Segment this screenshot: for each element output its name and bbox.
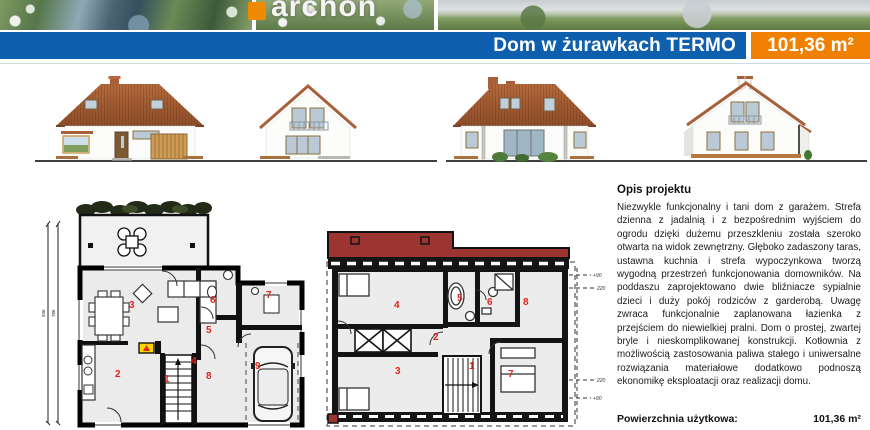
description-body: Niezwykle funkcjonalny i tani dom z gara… bbox=[617, 201, 861, 389]
photo-strip: archon bbox=[0, 0, 870, 30]
room-number: 3 bbox=[129, 301, 135, 311]
kitchen-fixtures bbox=[82, 345, 95, 400]
attic-plan: +90 220 220 +90 1 2 3 4 5 6 7 8 bbox=[325, 228, 610, 430]
elevation-front bbox=[55, 76, 205, 162]
wardrobe bbox=[355, 329, 411, 352]
room-number: 5 bbox=[457, 294, 463, 304]
stairs bbox=[165, 355, 192, 423]
room-number: 7 bbox=[508, 370, 514, 380]
washbasin bbox=[482, 308, 491, 314]
washbasin bbox=[224, 271, 233, 280]
height-mark: 220 bbox=[596, 286, 606, 292]
usable-area-row: Powierzchnia użytkowa: 101,36 m² bbox=[617, 413, 861, 425]
dresser bbox=[501, 348, 535, 358]
dimension-label: 786 bbox=[51, 309, 56, 317]
elevation-garden bbox=[452, 76, 597, 162]
ground-floor-plan: 936 786 bbox=[40, 195, 310, 430]
stove bbox=[139, 341, 161, 354]
dimension-label: 936 bbox=[41, 309, 46, 317]
toilet bbox=[466, 312, 475, 321]
area-badge: 101,36 m² bbox=[751, 32, 870, 59]
usable-area-value: 101,36 m² bbox=[813, 413, 861, 425]
room-number: 7 bbox=[266, 291, 272, 301]
description-heading: Opis projektu bbox=[617, 184, 861, 196]
ground-floor-drawing: 936 786 bbox=[40, 195, 310, 430]
project-title: Dom w żurawkach TERMO bbox=[493, 35, 746, 57]
usable-area-label: Powierzchnia użytkowa: bbox=[617, 413, 738, 425]
elevation-side-left bbox=[258, 82, 358, 162]
archon-logo: archon bbox=[248, 0, 377, 22]
logo-text: archon bbox=[271, 0, 377, 22]
stairs bbox=[443, 356, 481, 414]
room-number: 1 bbox=[469, 362, 475, 372]
height-mark: 220 bbox=[596, 378, 606, 384]
car bbox=[246, 343, 298, 425]
room-number: 9 bbox=[255, 362, 261, 372]
room-number: 5 bbox=[206, 326, 212, 336]
photo-garden-pool bbox=[0, 0, 252, 30]
room-number: 8 bbox=[206, 372, 212, 382]
bed bbox=[339, 274, 369, 296]
bed bbox=[339, 388, 369, 410]
photo-house-exterior bbox=[438, 0, 870, 30]
title-bar: Dom w żurawkach TERMO bbox=[0, 32, 746, 59]
elevation-side-right bbox=[683, 76, 813, 162]
room-number: 4 bbox=[191, 357, 197, 367]
room-number: 6 bbox=[210, 296, 216, 306]
room-number: 4 bbox=[394, 301, 400, 311]
room-number: 2 bbox=[433, 333, 439, 343]
header-divider bbox=[0, 63, 870, 64]
roof-band bbox=[328, 232, 569, 258]
project-sheet: archon Dom w żurawkach TERMO 101,36 m² bbox=[0, 0, 870, 430]
dining-table bbox=[89, 291, 129, 341]
height-mark: +90 bbox=[593, 396, 602, 402]
attic-drawing: +90 220 220 +90 bbox=[325, 228, 610, 430]
room-number: 8 bbox=[523, 298, 529, 308]
room-number: 6 bbox=[487, 298, 493, 308]
bed bbox=[501, 366, 535, 392]
height-mark: +90 bbox=[593, 273, 602, 279]
logo-square-icon bbox=[248, 2, 266, 20]
room-number: 2 bbox=[115, 370, 121, 380]
room-number: 3 bbox=[395, 367, 401, 377]
description-panel: Opis projektu Niezwykle funkcjonalny i t… bbox=[617, 184, 861, 389]
room-number: 1 bbox=[164, 375, 170, 385]
